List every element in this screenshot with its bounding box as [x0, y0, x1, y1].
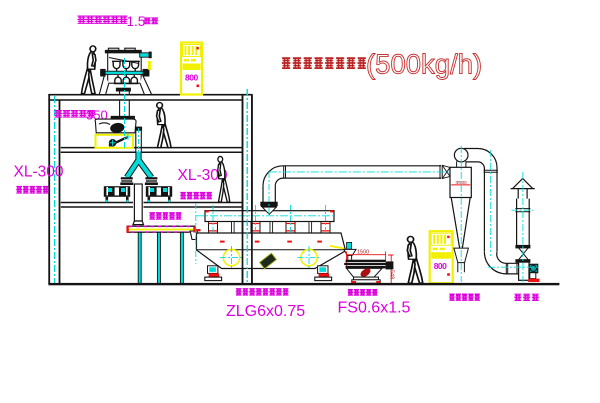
svg-text:800: 800 — [434, 261, 447, 271]
svg-text:XL-300: XL-300 — [14, 164, 64, 181]
svg-text:1500: 1500 — [357, 250, 369, 256]
svg-text:548: 548 — [389, 270, 395, 279]
svg-text:(500kg/h): (500kg/h) — [366, 49, 482, 80]
svg-text:ZLG6x0.75: ZLG6x0.75 — [226, 303, 305, 320]
svg-text:1.5: 1.5 — [127, 14, 146, 29]
svg-text:FS0.6x1.5: FS0.6x1.5 — [338, 300, 411, 317]
svg-text:800: 800 — [185, 73, 198, 83]
